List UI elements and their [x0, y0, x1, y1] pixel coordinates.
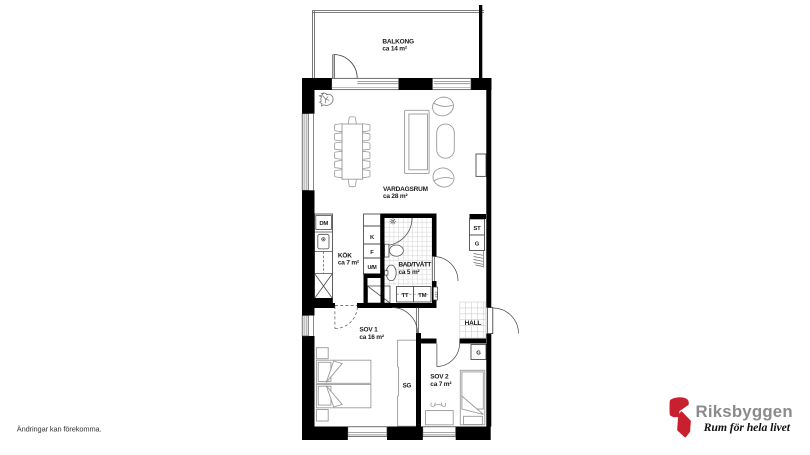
svg-text:G: G: [475, 242, 480, 248]
svg-text:213: 213: [434, 292, 438, 298]
svg-text:Ändringar kan förekomma.: Ändringar kan förekomma.: [17, 425, 102, 434]
svg-text:BALKONG: BALKONG: [382, 38, 414, 45]
svg-text:ca 14 m²: ca 14 m²: [382, 46, 407, 53]
svg-text:SOV 2: SOV 2: [430, 374, 449, 381]
svg-text:Rum för hela livet: Rum för hela livet: [703, 420, 791, 434]
svg-text:G: G: [476, 351, 481, 357]
svg-text:ca 7 m²: ca 7 m²: [338, 260, 360, 267]
svg-text:F: F: [370, 250, 374, 256]
svg-text:TM: TM: [418, 293, 426, 299]
svg-text:SG: SG: [403, 382, 412, 389]
svg-text:ca 16 m²: ca 16 m²: [359, 334, 384, 341]
svg-text:HALL: HALL: [465, 320, 482, 327]
svg-text:DM: DM: [319, 221, 328, 227]
svg-text:ca 7 m²: ca 7 m²: [430, 381, 452, 388]
svg-text:ca 28 m²: ca 28 m²: [383, 193, 408, 200]
svg-text:KÖK: KÖK: [338, 251, 352, 260]
svg-text:TT: TT: [402, 293, 409, 299]
svg-text:Riksbyggen: Riksbyggen: [696, 402, 793, 421]
svg-text:ST: ST: [473, 226, 481, 232]
svg-text:U/M: U/M: [368, 265, 378, 271]
svg-text:SOV 1: SOV 1: [359, 327, 378, 334]
svg-text:VARDAGSRUM: VARDAGSRUM: [383, 186, 428, 193]
svg-text:ca 5 m²: ca 5 m²: [399, 269, 421, 276]
svg-text:BAD/TVÄTT: BAD/TVÄTT: [399, 261, 432, 269]
